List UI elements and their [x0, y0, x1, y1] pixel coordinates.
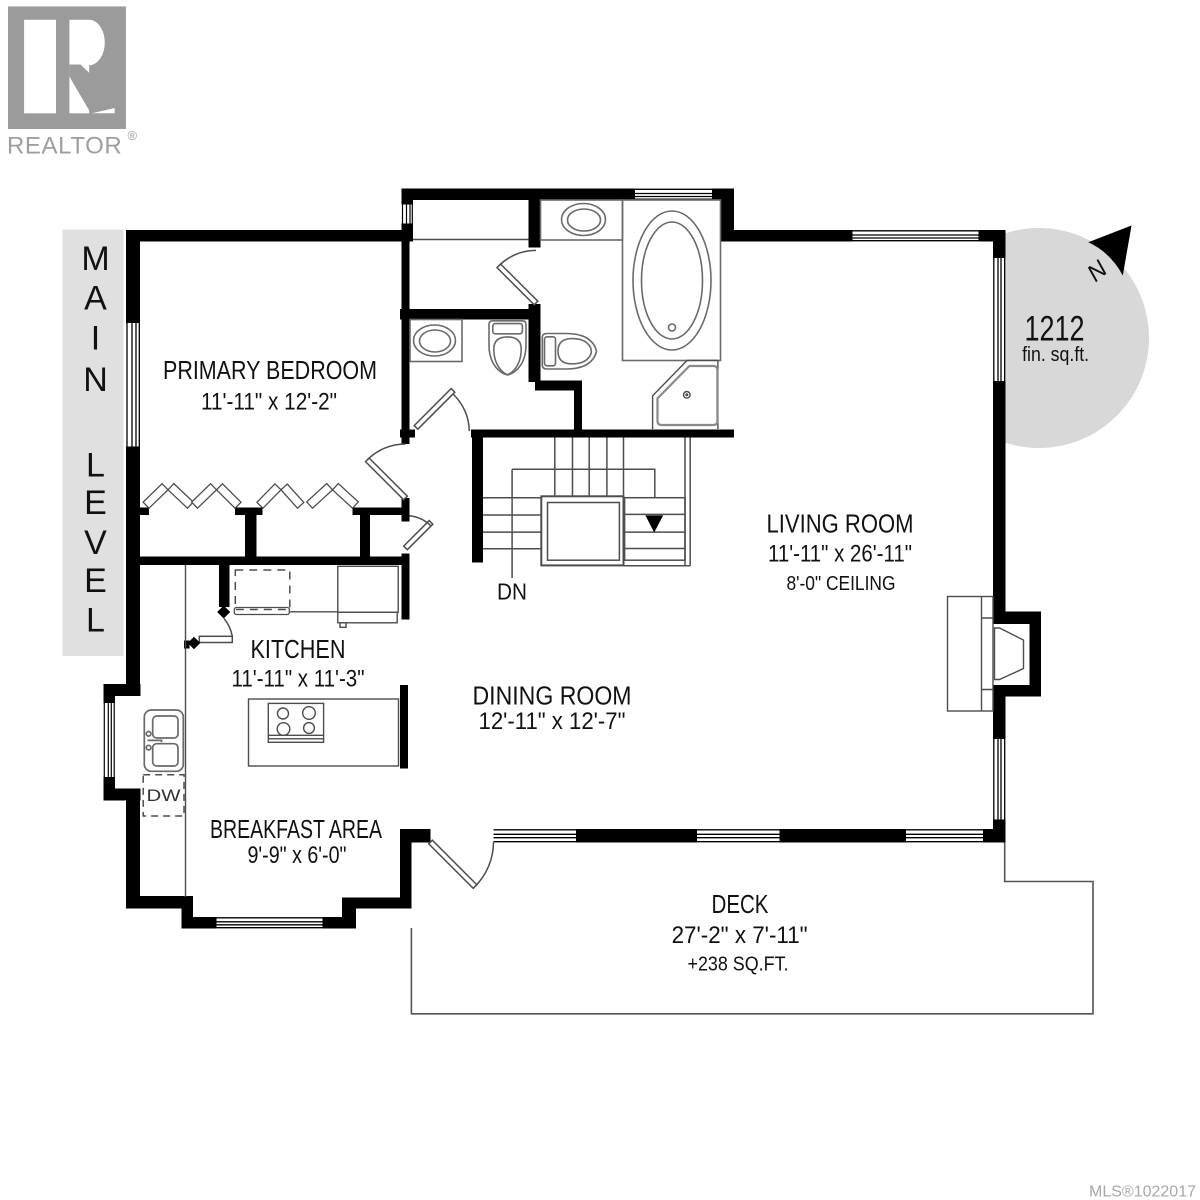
svg-text:M: M [81, 240, 109, 278]
svg-text:N: N [83, 361, 108, 399]
svg-text:A: A [84, 280, 107, 318]
svg-text:L: L [86, 446, 105, 484]
svg-text:27'-2" x 7'-11": 27'-2" x 7'-11" [672, 922, 808, 949]
svg-text:V: V [84, 524, 107, 562]
svg-text:12'-11" x 12'-7": 12'-11" x 12'-7" [479, 708, 626, 735]
svg-text:DN: DN [497, 579, 527, 605]
svg-text:LIVING ROOM: LIVING ROOM [767, 509, 914, 539]
svg-text:DECK: DECK [712, 889, 770, 919]
svg-text:I: I [91, 319, 100, 357]
svg-text:L: L [86, 602, 105, 640]
svg-text:11'-11" x 12'-2": 11'-11" x 12'-2" [201, 389, 337, 416]
svg-text:9'-9" x 6'-0": 9'-9" x 6'-0" [248, 842, 347, 869]
svg-text:®: ® [128, 128, 138, 143]
svg-text:11'-11" x 26'-11": 11'-11" x 26'-11" [768, 541, 912, 568]
svg-text:8'-0" CEILING: 8'-0" CEILING [787, 573, 896, 595]
svg-text:REALTOR: REALTOR [7, 133, 122, 160]
svg-text:E: E [84, 484, 107, 522]
svg-text:1212: 1212 [1025, 310, 1085, 349]
svg-text:fin. sq.ft.: fin. sq.ft. [1022, 344, 1089, 366]
svg-text:PRIMARY BEDROOM: PRIMARY BEDROOM [163, 355, 377, 385]
svg-text:E: E [84, 562, 107, 600]
svg-text:11'-11" x 11'-3": 11'-11" x 11'-3" [232, 666, 365, 693]
svg-text:+238 SQ.FT.: +238 SQ.FT. [688, 954, 789, 976]
svg-text:MLS®1022017: MLS®1022017 [1089, 1184, 1196, 1200]
svg-text:DINING ROOM: DINING ROOM [473, 681, 632, 711]
svg-text:KITCHEN: KITCHEN [251, 634, 346, 664]
svg-text:BREAKFAST AREA: BREAKFAST AREA [210, 814, 382, 844]
svg-text:DW: DW [147, 786, 181, 805]
